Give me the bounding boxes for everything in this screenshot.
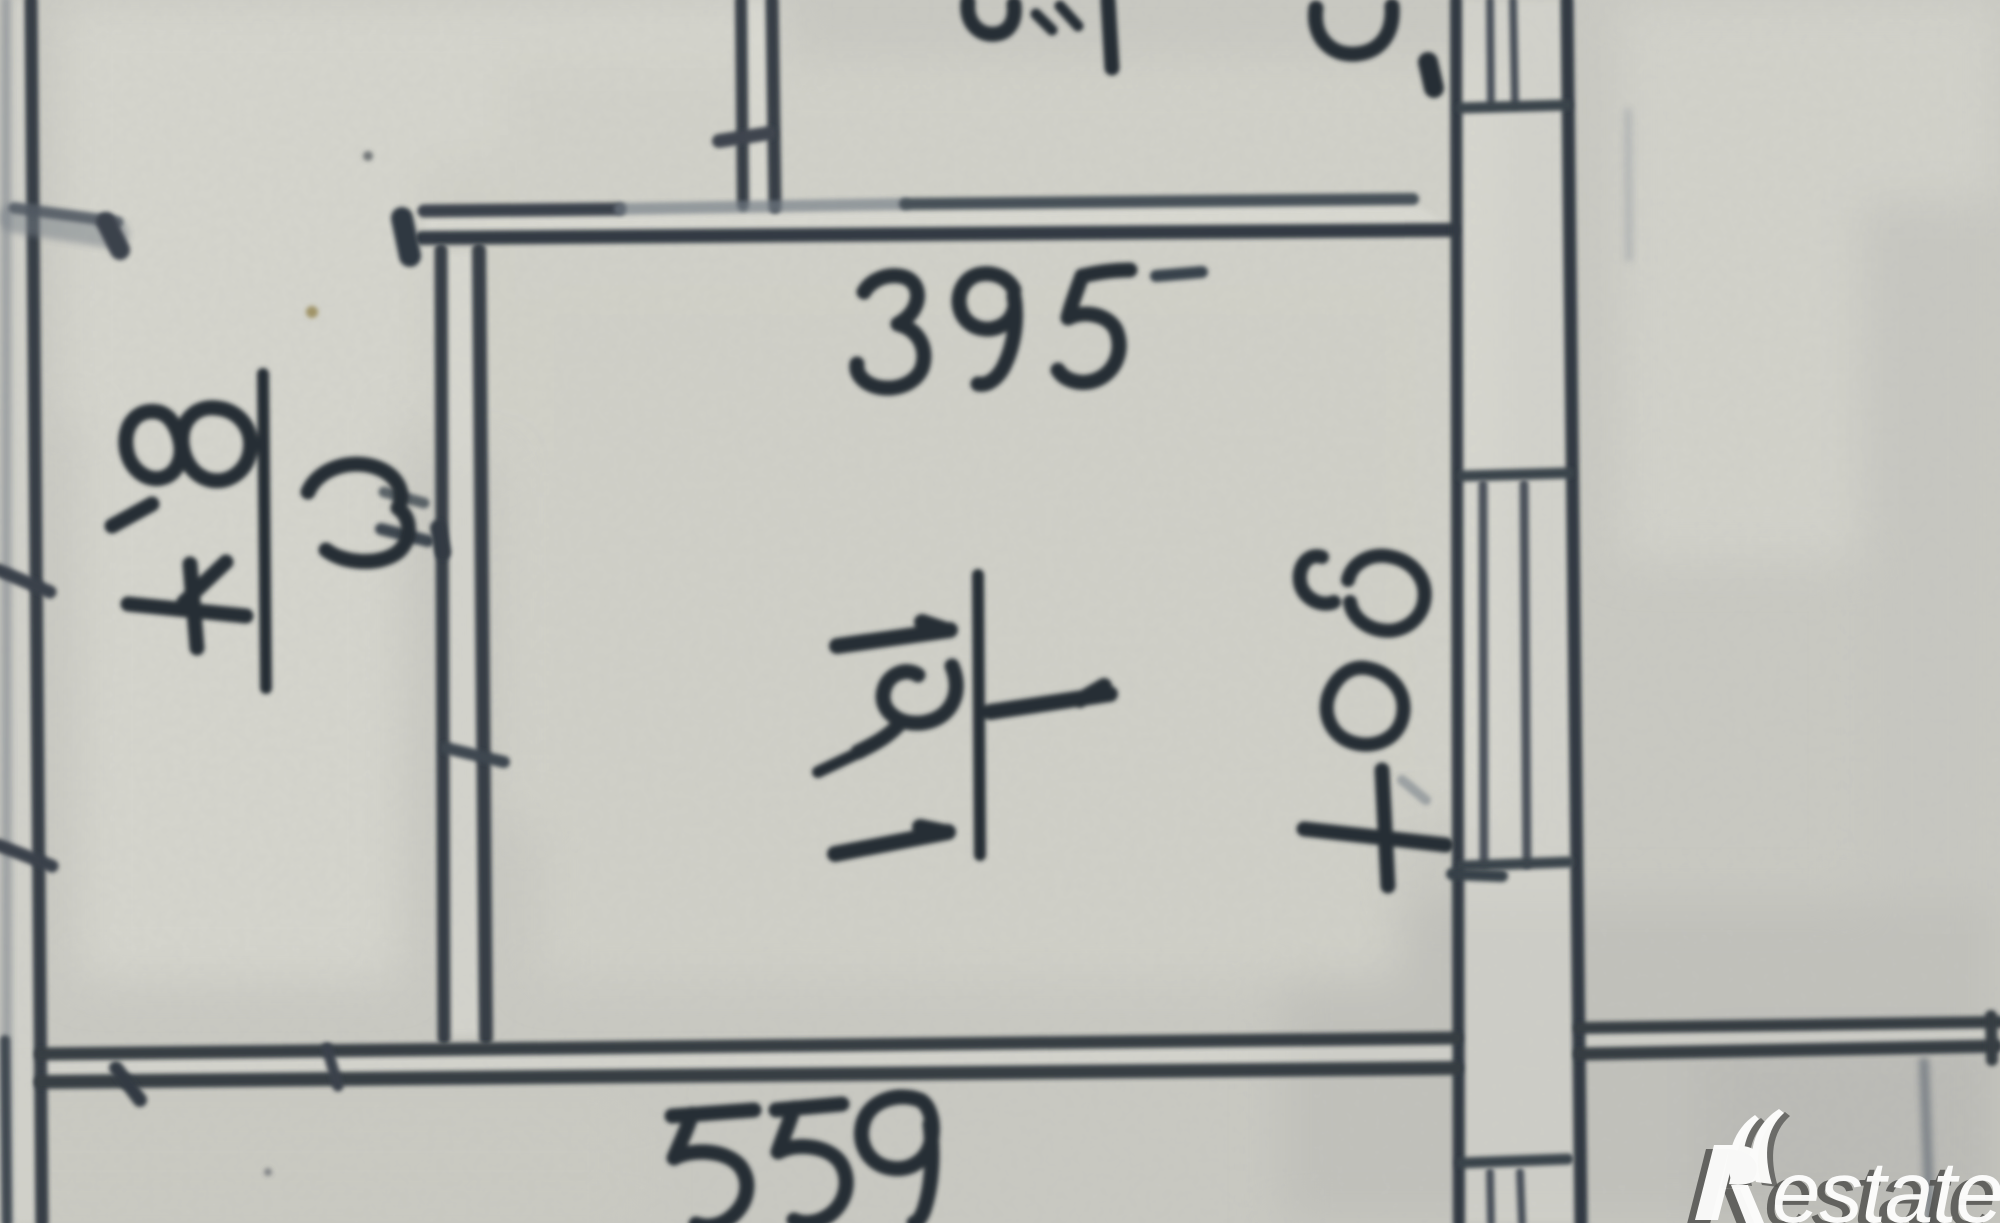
svg-text:estate: estate — [1772, 1144, 2000, 1223]
